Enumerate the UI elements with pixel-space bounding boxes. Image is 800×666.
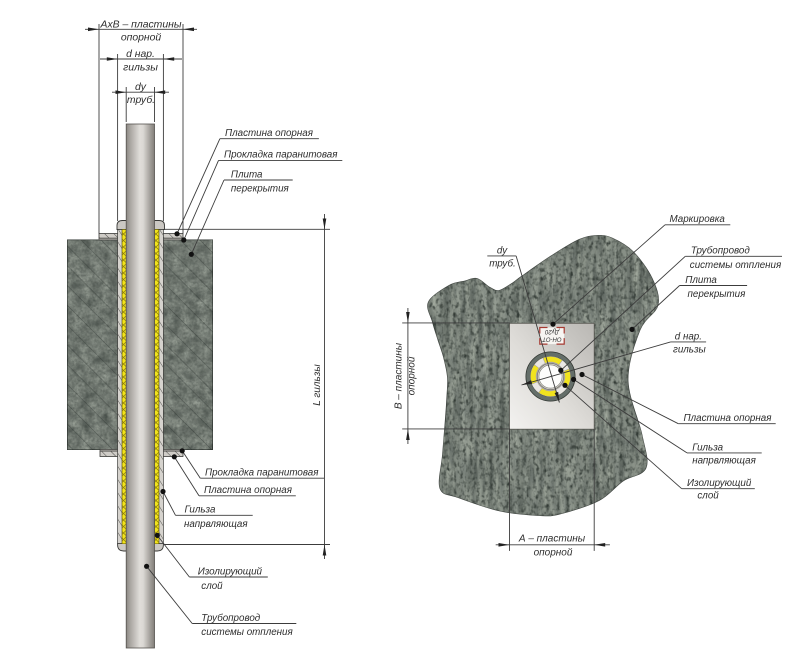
- svg-text:dу: dу: [497, 245, 508, 256]
- svg-text:опорной: опорной: [121, 33, 162, 44]
- svg-text:Плита: Плита: [685, 275, 717, 286]
- svg-text:напрвляющая: напрвляющая: [184, 519, 248, 530]
- svg-text:Изолирующий: Изолирующий: [198, 566, 263, 577]
- svg-text:гильзы: гильзы: [673, 345, 707, 356]
- svg-text:системы отпления: системы отпления: [690, 260, 782, 271]
- svg-text:Гильза: Гильза: [692, 442, 723, 453]
- svg-text:d нар.: d нар.: [675, 331, 702, 342]
- svg-text:Пластина опорная: Пластина опорная: [684, 413, 773, 424]
- svg-text:слой: слой: [697, 491, 719, 502]
- svg-text:ОН-ОТ: ОН-ОТ: [541, 335, 562, 341]
- svg-text:перекрытия: перекрытия: [231, 184, 290, 195]
- svg-text:опорной: опорной: [534, 547, 573, 558]
- svg-text:Прокладка паранитовая: Прокладка паранитовая: [205, 468, 319, 479]
- svg-text:напрвляющая: напрвляющая: [692, 456, 756, 467]
- svg-text:Изолирующий: Изолирующий: [687, 478, 752, 489]
- svg-text:опорной: опорной: [406, 356, 417, 395]
- svg-text:Пластина опорная: Пластина опорная: [204, 485, 293, 496]
- svg-text:d нар.: d нар.: [126, 49, 155, 60]
- svg-text:Трубопровод: Трубопровод: [691, 246, 750, 257]
- svg-text:перекрытия: перекрытия: [688, 289, 747, 300]
- svg-text:труб.: труб.: [489, 259, 516, 270]
- svg-text:А – пластины: А – пластины: [518, 534, 586, 545]
- svg-text:труб.: труб.: [127, 94, 155, 106]
- svg-text:АхВ – пластины: АхВ – пластины: [100, 19, 182, 30]
- svg-text:Пластина опорная: Пластина опорная: [225, 128, 314, 139]
- svg-text:слой: слой: [201, 581, 223, 592]
- svg-text:Ду20: Ду20: [544, 328, 560, 334]
- svg-text:L гильзы: L гильзы: [312, 364, 323, 406]
- svg-text:Маркировка: Маркировка: [670, 214, 726, 225]
- svg-text:dу: dу: [135, 82, 147, 93]
- svg-text:гильзы: гильзы: [123, 62, 158, 73]
- svg-text:Гильза: Гильза: [185, 505, 216, 516]
- svg-text:Плита: Плита: [231, 170, 263, 181]
- svg-text:Трубопровод: Трубопровод: [201, 613, 260, 624]
- svg-text:Прокладка паранитовая: Прокладка паранитовая: [224, 150, 338, 161]
- svg-text:В – пластины: В – пластины: [394, 342, 405, 409]
- svg-text:системы отпления: системы отпления: [201, 627, 293, 638]
